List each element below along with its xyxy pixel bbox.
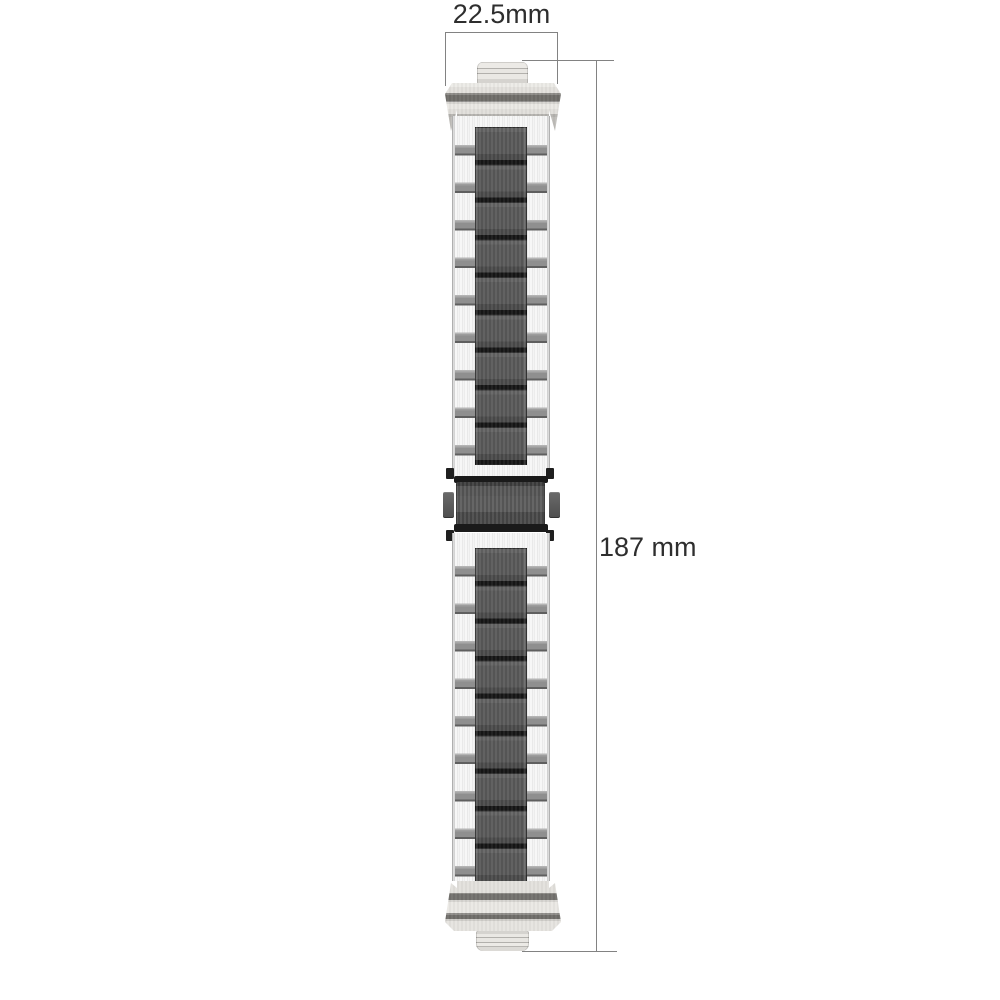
clasp-release-button-left: [443, 492, 454, 518]
watch-band-dimension-diagram: 22.5mm 187 mm: [0, 0, 1000, 1000]
top-end-tab: [477, 62, 528, 84]
width-dimension-label: 22.5mm: [445, 1, 558, 28]
bottom-end-tab: [476, 931, 529, 951]
clasp-hinge-top-left: [446, 468, 454, 479]
clasp-release-button-right: [549, 492, 560, 518]
width-dimension-line: [445, 32, 558, 33]
clasp-body: [456, 482, 545, 527]
clasp-bottom-bar: [454, 524, 548, 532]
bottom-lug-adapter: [445, 880, 561, 932]
height-dimension-tick-bottom: [522, 951, 617, 952]
width-dimension-tick-left: [445, 32, 446, 86]
width-dimension-tick-right: [557, 32, 558, 84]
upper-strap-center-links: [475, 127, 527, 465]
height-dimension-label: 187 mm: [599, 534, 697, 561]
height-dimension-line: [596, 60, 597, 952]
lower-strap-center-links: [475, 548, 527, 881]
height-dimension-tick-top: [522, 60, 614, 61]
